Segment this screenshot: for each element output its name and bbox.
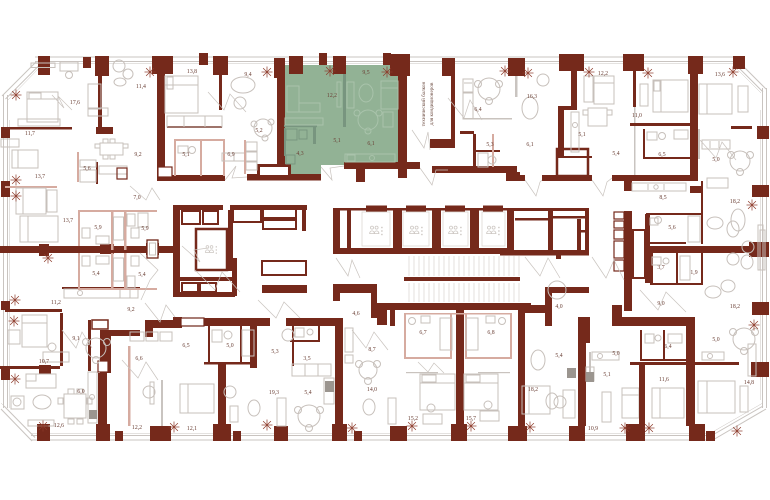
svg-text:6,4: 6,4 [664, 344, 671, 350]
svg-text:5,0: 5,0 [712, 157, 719, 163]
svg-text:5,4: 5,4 [304, 390, 311, 396]
svg-text:5,0: 5,0 [226, 343, 233, 349]
svg-text:12,2: 12,2 [598, 71, 608, 77]
svg-text:6,9: 6,9 [227, 152, 234, 158]
svg-text:7,0: 7,0 [133, 195, 140, 201]
svg-text:16,3: 16,3 [527, 94, 537, 100]
svg-text:5,9: 5,9 [141, 226, 148, 232]
svg-text:15,2: 15,2 [408, 416, 418, 422]
svg-text:6,1: 6,1 [526, 142, 533, 148]
svg-text:5,3: 5,3 [486, 142, 493, 148]
svg-text:13,8: 13,8 [187, 69, 197, 75]
svg-text:6,6: 6,6 [135, 356, 142, 362]
svg-text:5,4: 5,4 [138, 272, 145, 278]
svg-text:4,6: 4,6 [352, 311, 359, 317]
svg-text:5,1: 5,1 [182, 152, 189, 158]
svg-text:5,0: 5,0 [612, 351, 619, 357]
svg-text:14,8: 14,8 [744, 380, 754, 386]
svg-text:13,7: 13,7 [63, 218, 73, 224]
svg-text:6,8: 6,8 [487, 330, 494, 336]
svg-text:12,2: 12,2 [132, 425, 142, 431]
svg-text:5,6: 5,6 [668, 225, 675, 231]
svg-text:5,4: 5,4 [612, 151, 619, 157]
svg-text:12,2: 12,2 [327, 93, 337, 99]
svg-text:6,0: 6,0 [77, 389, 84, 395]
svg-text:9,2: 9,2 [134, 152, 141, 158]
svg-text:18,2: 18,2 [528, 387, 538, 393]
svg-text:для кондиционеров: для кондиционеров [429, 82, 435, 125]
svg-text:12,1: 12,1 [187, 426, 197, 432]
svg-text:14,0: 14,0 [367, 387, 377, 393]
svg-text:6,5: 6,5 [658, 152, 665, 158]
svg-text:технический балкон: технический балкон [420, 81, 427, 126]
svg-text:9,4: 9,4 [244, 72, 251, 78]
svg-text:19,3: 19,3 [269, 390, 279, 396]
svg-text:9,1: 9,1 [72, 336, 79, 342]
svg-text:15,7: 15,7 [466, 416, 476, 422]
svg-text:12,6: 12,6 [54, 423, 64, 429]
svg-text:5,1: 5,1 [578, 132, 585, 138]
svg-text:5,1: 5,1 [603, 372, 610, 378]
svg-text:18,2: 18,2 [730, 304, 740, 310]
svg-text:4,3: 4,3 [296, 151, 303, 157]
svg-text:10,9: 10,9 [588, 426, 598, 432]
svg-text:5,6: 5,6 [83, 166, 90, 172]
svg-text:5,1: 5,1 [333, 138, 340, 144]
svg-text:3,5: 3,5 [303, 356, 310, 362]
svg-text:9,5: 9,5 [362, 70, 369, 76]
svg-text:13,6: 13,6 [715, 72, 725, 78]
svg-text:10,7: 10,7 [39, 359, 49, 365]
svg-text:6,5: 6,5 [182, 343, 189, 349]
svg-text:8,5: 8,5 [659, 195, 666, 201]
svg-text:6,4: 6,4 [474, 107, 481, 113]
svg-text:6,1: 6,1 [367, 141, 374, 147]
svg-text:9,2: 9,2 [127, 307, 134, 313]
svg-text:11,4: 11,4 [136, 84, 146, 90]
svg-text:13,7: 13,7 [35, 174, 45, 180]
svg-text:5,9: 5,9 [94, 225, 101, 231]
svg-text:11,2: 11,2 [51, 300, 61, 306]
svg-text:6,7: 6,7 [419, 330, 426, 336]
svg-text:18,2: 18,2 [730, 199, 740, 205]
svg-text:11,0: 11,0 [632, 113, 642, 119]
svg-text:11,6: 11,6 [659, 377, 669, 383]
svg-text:8,7: 8,7 [368, 347, 375, 353]
svg-text:5,2: 5,2 [255, 128, 262, 134]
svg-text:11,7: 11,7 [25, 131, 35, 137]
svg-text:3,7: 3,7 [657, 265, 664, 271]
svg-text:9,0: 9,0 [657, 301, 664, 307]
svg-text:5,0: 5,0 [712, 337, 719, 343]
svg-text:5,3: 5,3 [271, 349, 278, 355]
svg-text:17,6: 17,6 [70, 100, 80, 106]
svg-text:5,4: 5,4 [92, 271, 99, 277]
svg-text:4,0: 4,0 [555, 304, 562, 310]
svg-text:5,4: 5,4 [555, 353, 562, 359]
svg-text:1,9: 1,9 [690, 270, 697, 276]
